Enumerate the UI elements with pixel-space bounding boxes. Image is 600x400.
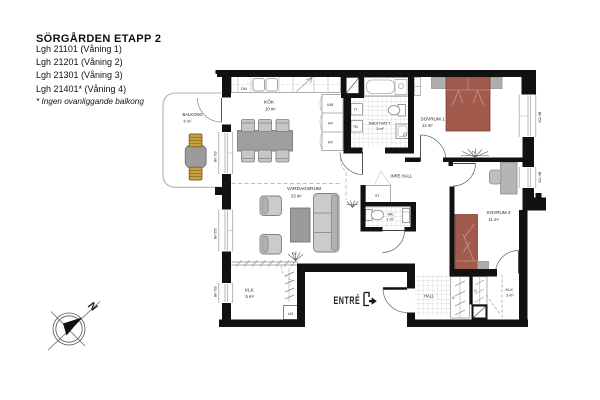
svg-text:INRE HALL: INRE HALL [391,174,413,179]
svg-text:G: G [474,289,477,293]
svg-text:G: G [452,296,455,300]
svg-text:TT: TT [354,108,358,112]
svg-text:5 m²: 5 m² [377,127,385,131]
svg-text:11 m²: 11 m² [489,217,500,222]
svg-text:K/F: K/F [328,141,333,145]
svg-text:BH 750: BH 750 [538,172,542,183]
svg-text:SOVRUM 2: SOVRUM 2 [487,210,511,215]
svg-text:BH 550: BH 550 [538,112,542,123]
svg-text:KÖK: KÖK [264,99,275,106]
svg-text:ST: ST [375,194,380,198]
svg-text:KLK: KLK [245,288,255,293]
svg-text:WC: WC [388,213,395,217]
svg-text:10 m²: 10 m² [265,107,276,112]
svg-text:ENTRÉ: ENTRÉ [334,295,361,307]
svg-text:23 m²: 23 m² [291,194,302,199]
svg-text:TV: TV [472,151,477,155]
svg-text:K/F: K/F [328,122,333,126]
svg-text:HALL: HALL [424,294,435,299]
svg-text:BAD/TVÄTT: BAD/TVÄTT [369,121,391,126]
svg-text:12 m²: 12 m² [422,123,433,128]
svg-text:1 m²: 1 m² [387,218,395,222]
svg-text:6 m²: 6 m² [184,119,193,124]
svg-text:U/M: U/M [327,103,333,107]
svg-text:BH 700: BH 700 [214,286,218,297]
svg-text:BH 550: BH 550 [214,228,218,239]
svg-text:5 m²: 5 m² [246,294,255,299]
svg-text:BH 700: BH 700 [214,151,218,162]
svg-text:LB: LB [288,311,293,316]
svg-text:VARDAGSRUM: VARDAGSRUM [287,186,321,192]
svg-text:DM: DM [241,87,247,91]
svg-text:TM: TM [353,125,358,129]
svg-text:SOVRUM 1: SOVRUM 1 [421,117,445,122]
svg-text:KLK: KLK [506,287,514,292]
svg-text:BALKONG: BALKONG [183,112,203,117]
svg-text:N: N [85,300,99,314]
svg-text:3 m²: 3 m² [506,294,514,298]
